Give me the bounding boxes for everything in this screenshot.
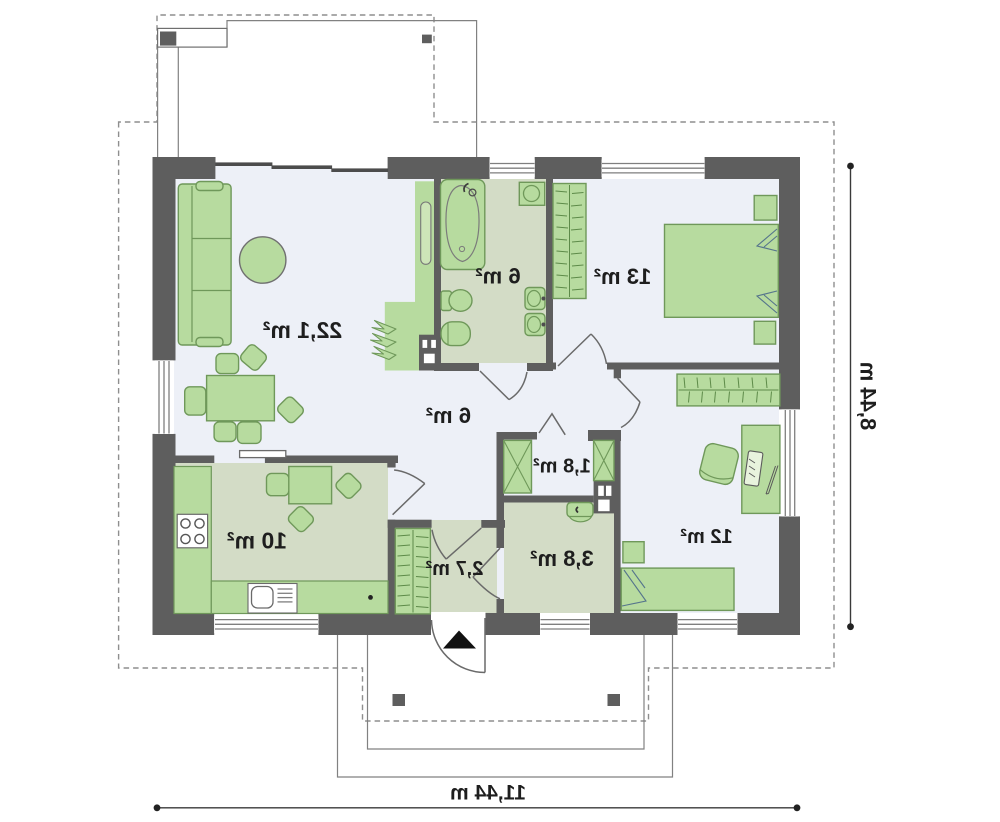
svg-text:8,44 m: 8,44 m	[856, 362, 881, 431]
svg-text:6 m²: 6 m²	[475, 264, 520, 289]
svg-text:12 m²: 12 m²	[680, 526, 733, 548]
svg-text:13 m²: 13 m²	[594, 264, 651, 289]
svg-text:22,1 m²: 22,1 m²	[263, 317, 343, 343]
svg-text:6 m²: 6 m²	[426, 403, 471, 428]
svg-text:10 m²: 10 m²	[227, 528, 287, 554]
svg-text:3,8 m²: 3,8 m²	[530, 546, 594, 571]
svg-text:11,44 m: 11,44 m	[450, 782, 526, 805]
svg-text:1,8 m²: 1,8 m²	[533, 456, 591, 478]
svg-text:2,7 m²: 2,7 m²	[425, 558, 483, 580]
